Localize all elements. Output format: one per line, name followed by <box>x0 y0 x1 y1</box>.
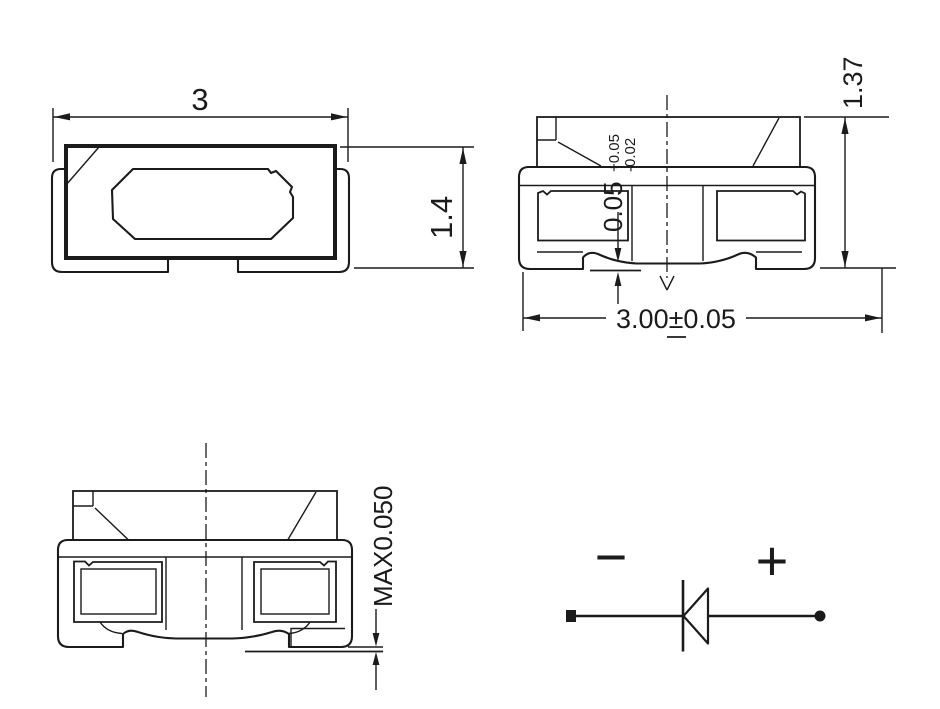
width-dimension: 3.00±0.05 <box>523 268 882 337</box>
minus-label: − <box>595 525 628 588</box>
anode-terminal-dot <box>815 611 826 622</box>
drawing-canvas: 3 1.4 <box>0 0 940 709</box>
left-pad-inner-outline <box>81 569 156 614</box>
top-view: 3 1.4 <box>52 82 474 272</box>
cavity-wall <box>166 557 242 630</box>
dim-arrowhead-icon <box>373 633 380 647</box>
dim-arrowhead-icon <box>865 314 881 321</box>
right-pad-outline <box>717 191 805 241</box>
dimension-text: 0.05 <box>598 181 628 232</box>
right-pad-outline <box>254 562 336 623</box>
plus-label: + <box>756 529 789 592</box>
right-pad-inner-outline <box>261 569 329 614</box>
tolerance-upper-text: +0.05 <box>606 134 623 172</box>
package-body-outline <box>66 146 335 258</box>
height-dimension: 1.37 <box>804 56 896 268</box>
dim-arrowhead-icon <box>615 272 622 286</box>
dim-arrowhead-icon <box>459 148 466 164</box>
diode-triangle <box>684 589 709 644</box>
dimension-text: 3.00±0.05 <box>616 304 736 334</box>
dim-arrowhead-icon <box>331 113 347 120</box>
pad-bend-line <box>100 622 310 634</box>
dim-arrowhead-icon <box>373 652 380 665</box>
tolerance-lower-text: -0.02 <box>622 138 639 172</box>
dimension-text: 3 <box>191 82 208 117</box>
standoff-dimension: 0.05 +0.05 -0.02 <box>590 134 641 304</box>
centerline-arrowhead-icon <box>660 276 674 290</box>
dim-arrowhead-icon <box>524 314 540 321</box>
side-view: 0.05 +0.05 -0.02 1.37 3.00±0.05 <box>519 56 896 337</box>
polarity-symbol: − + <box>566 525 826 652</box>
cap-corner-notch <box>537 117 556 140</box>
package-outline-drawing: 3 1.4 <box>0 0 940 709</box>
cathode-terminal-dot <box>566 610 576 622</box>
extension-line <box>804 117 896 268</box>
dim-arrowhead-icon <box>841 118 848 134</box>
max-standoff-dimension: MAX0.050 <box>245 486 398 690</box>
dim-arrowhead-icon <box>841 251 848 267</box>
top-view-depth-dimension: 1.4 <box>340 147 474 268</box>
front-cap-outline <box>73 491 337 540</box>
dimension-text: MAX0.050 <box>368 486 398 607</box>
left-pad-outline <box>74 562 162 623</box>
dimension-text: 1.37 <box>838 56 868 109</box>
dim-arrowhead-icon <box>54 113 70 120</box>
side-cap-outline <box>537 117 800 167</box>
cap-corner-notch <box>73 491 93 506</box>
reflector-edge <box>558 118 779 166</box>
dimension-text: 1.4 <box>424 196 459 239</box>
front-view: MAX0.050 <box>58 443 398 697</box>
front-body-outline <box>58 540 352 647</box>
dim-arrowhead-icon <box>459 251 466 267</box>
